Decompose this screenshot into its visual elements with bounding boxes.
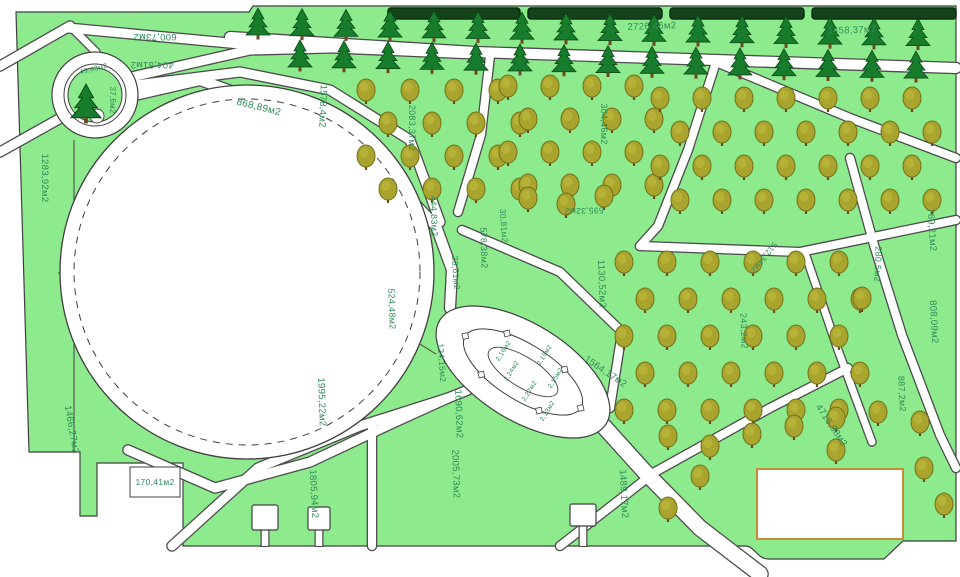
hedge-strip [670,8,804,19]
area-label: 444,83м2 [428,195,439,236]
plan-canvas: 600,73м2404,81м249,43м237,6м21283,92м286… [0,0,960,577]
area-label: 280,5м2 [872,246,883,282]
area-label: 1283,92м2 [39,154,50,203]
area-label: 2005,73м2 [449,449,462,498]
area-label: 1690,62м2 [452,389,465,438]
area-label: 243,2м2 [738,313,749,349]
area-label: 304,46м2 [599,103,609,144]
area-label: 524,48м2 [386,288,397,329]
hedge-strip [528,8,662,19]
circular-plaza [60,85,434,459]
area-label: 2726,46м2 [627,20,676,33]
area-label: 1130,52м2 [595,260,608,309]
site-pad-rectangle [757,469,903,539]
area-label: 1458,37м2 [827,24,876,37]
area-label: 404,81м2 [130,59,173,70]
area-label: 1995,22м2 [315,377,328,426]
area-label: 600,73м2 [133,31,176,42]
area-label: 595,32м2 [564,205,603,216]
area-label: 37,6м2 [108,86,117,114]
hedge-strip [388,8,520,19]
area-label: 170,41м2 [136,477,175,487]
area-label: 2083,37м2 [407,105,417,151]
area-label: 578,38м2 [478,227,489,268]
hedge-strip [812,8,956,19]
area-label: 1578,4м2 [316,84,329,128]
area-label: 808,09м2 [927,300,940,344]
park-landscape-plan: 600,73м2404,81м249,43м237,6м21283,92м286… [0,0,960,577]
area-label: 887,2м2 [896,376,908,412]
